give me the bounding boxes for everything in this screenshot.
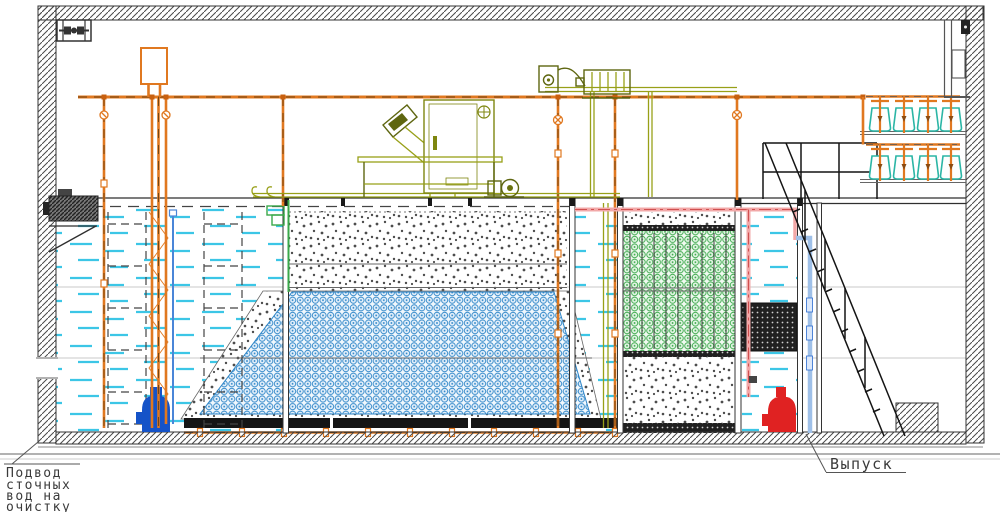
- biofilter-tank: [623, 212, 735, 433]
- ventilation-fan-icon: [57, 20, 91, 41]
- blower: [576, 70, 630, 98]
- top-wall: [38, 6, 983, 20]
- dosing-vessel-shelves: [860, 96, 966, 183]
- control-cabinet: [424, 100, 494, 193]
- engineering-drawing: Подвод сточных вод на очистку Выпуск: [0, 0, 1000, 512]
- inlet-opening: [36, 357, 58, 379]
- outlet-pipe-marking: [807, 298, 813, 312]
- floor-slab: [56, 432, 966, 444]
- beam-hooks: [252, 187, 275, 197]
- inlet-label-line4: очистку: [6, 500, 71, 512]
- gravel-top-zone: [289, 211, 567, 293]
- pipe-valve-small: [749, 376, 757, 383]
- dosing-vessels: [870, 96, 962, 181]
- riser-box: [141, 48, 167, 84]
- wall-top-posts: [283, 198, 803, 206]
- inlet-label: Подвод сточных вод на очистку: [4, 442, 80, 512]
- platform-railing: [763, 143, 877, 199]
- outlet-label-text: Выпуск: [830, 455, 893, 473]
- right-wall: [966, 6, 984, 443]
- valves: [100, 111, 742, 125]
- section-drawing: Подвод сточных вод на очистку Выпуск: [0, 0, 1000, 512]
- outlet-pipe-marking: [807, 356, 813, 370]
- outlet-pipe-marking: [807, 326, 813, 340]
